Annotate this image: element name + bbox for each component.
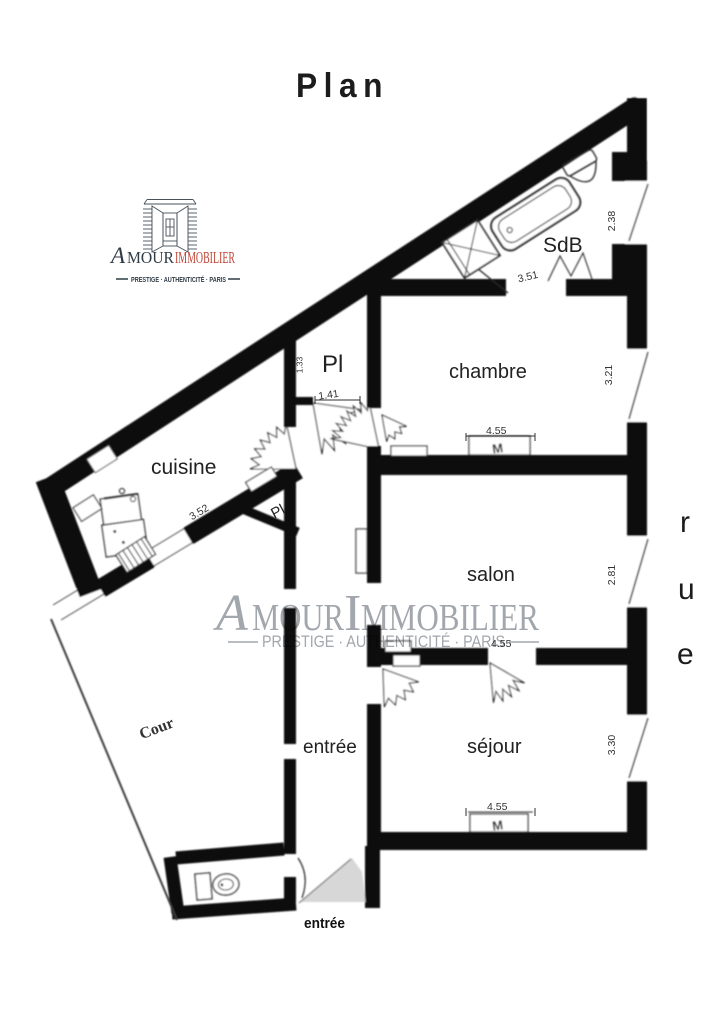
svg-text:Pl: Pl xyxy=(322,351,343,378)
svg-text:e: e xyxy=(677,638,694,671)
svg-text:chambre: chambre xyxy=(449,361,527,383)
svg-text:4.55: 4.55 xyxy=(486,425,507,437)
svg-text:3.21: 3.21 xyxy=(603,365,615,386)
svg-text:MOUR: MOUR xyxy=(127,248,174,267)
svg-text:PRESTIGE · AUTHENTICITÉ · PARI: PRESTIGE · AUTHENTICITÉ · PARIS xyxy=(131,275,226,284)
svg-text:SdB: SdB xyxy=(543,234,583,257)
svg-text:entrée: entrée xyxy=(304,915,345,932)
svg-text:r: r xyxy=(680,506,690,539)
svg-text:cuisine: cuisine xyxy=(151,456,216,479)
svg-text:2.81: 2.81 xyxy=(606,565,618,586)
svg-text:4.55: 4.55 xyxy=(487,801,508,813)
svg-text:A: A xyxy=(109,243,126,268)
svg-text:3.30: 3.30 xyxy=(606,735,618,756)
svg-text:entrée: entrée xyxy=(303,737,357,758)
svg-text:M: M xyxy=(491,440,504,456)
svg-text:1.33: 1.33 xyxy=(294,356,304,373)
svg-text:A: A xyxy=(213,585,248,642)
svg-text:IMMOBILIER: IMMOBILIER xyxy=(175,248,235,267)
svg-text:salon: salon xyxy=(467,564,515,586)
svg-text:séjour: séjour xyxy=(467,736,522,758)
svg-text:u: u xyxy=(678,573,695,606)
svg-text:M: M xyxy=(491,817,504,833)
svg-text:2.38: 2.38 xyxy=(606,211,618,232)
svg-text:PRESTIGE · AUTHENTICITÉ · PARI: PRESTIGE · AUTHENTICITÉ · PARIS xyxy=(262,632,505,651)
svg-text:Plan: Plan xyxy=(296,67,389,105)
